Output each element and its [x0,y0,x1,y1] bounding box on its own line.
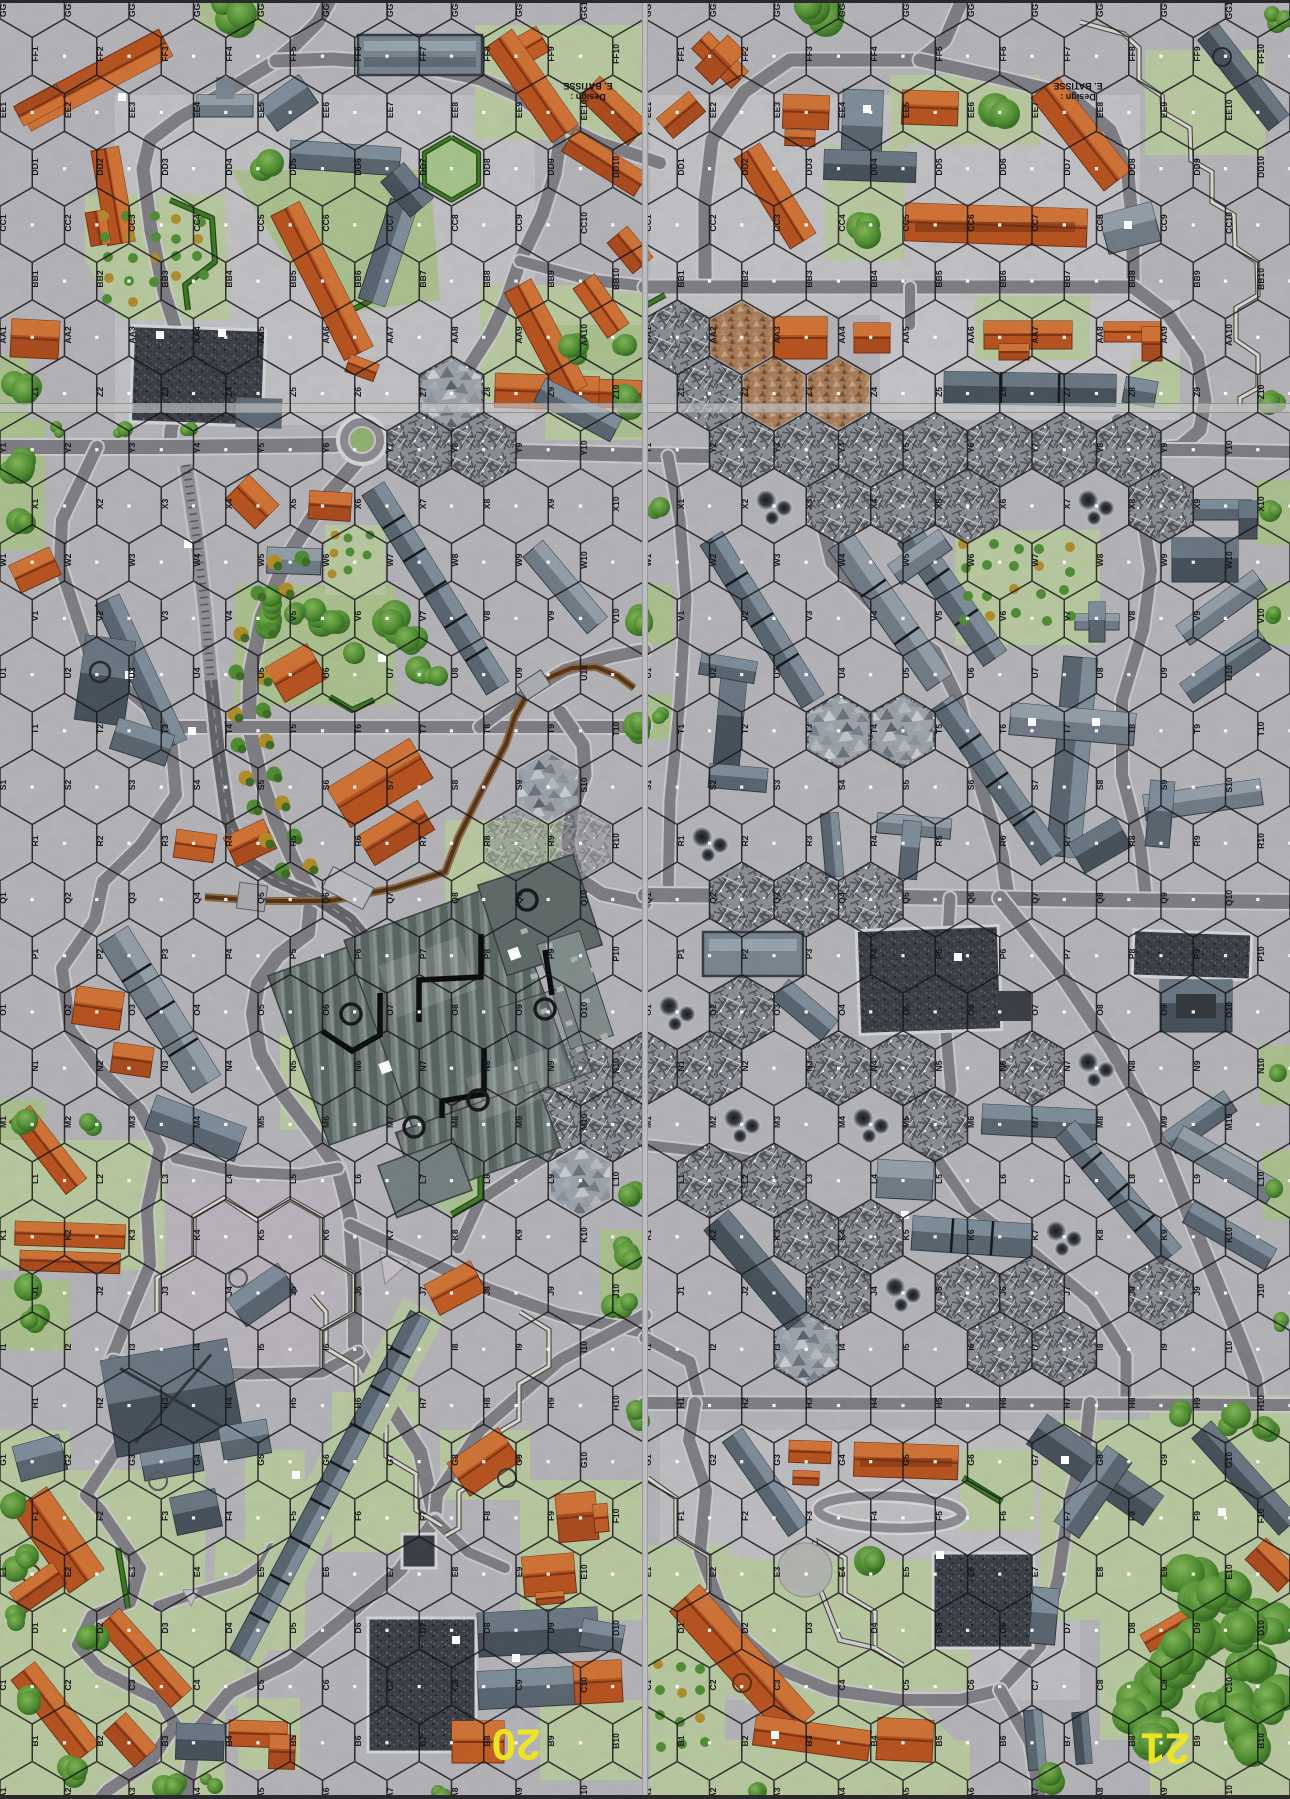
svg-text:O7: O7 [385,1004,395,1016]
svg-text:S1: S1 [0,780,8,791]
svg-text:R3: R3 [804,835,814,846]
svg-text:CC5: CC5 [256,214,266,231]
svg-text:Y6: Y6 [966,443,976,454]
svg-text:AA8: AA8 [450,326,460,343]
svg-text:20: 20 [492,1719,541,1768]
svg-text:N5: N5 [934,1060,944,1071]
svg-text:Q3: Q3 [772,892,782,904]
svg-text:K1: K1 [0,1229,8,1240]
svg-text:P4: P4 [224,949,234,960]
svg-text:M7: M7 [1030,1116,1040,1128]
svg-text:L5: L5 [934,1174,944,1184]
svg-text:B3: B3 [804,1735,814,1746]
svg-text:BB1: BB1 [30,270,40,287]
svg-text:FF2: FF2 [95,46,105,61]
svg-text:O5: O5 [256,1004,266,1016]
svg-text:J7: J7 [1062,1286,1072,1296]
svg-text:BB6: BB6 [353,270,363,287]
svg-text:Z2: Z2 [95,387,105,397]
svg-text:S7: S7 [1030,780,1040,791]
svg-text:T10: T10 [611,721,621,736]
svg-text:V7: V7 [1062,611,1072,622]
svg-text:BB8: BB8 [482,270,492,287]
svg-text:DD10: DD10 [1256,156,1266,178]
svg-text:R8: R8 [482,835,492,846]
svg-text:K5: K5 [256,1229,266,1240]
svg-text:K6: K6 [966,1229,976,1240]
svg-text:G1: G1 [0,1454,8,1466]
svg-text:C8: C8 [1095,1679,1105,1690]
svg-text:V2: V2 [95,611,105,622]
svg-text:B2: B2 [95,1735,105,1746]
svg-text:V2: V2 [740,611,750,622]
svg-text:E5: E5 [901,1567,911,1578]
svg-text:DD8: DD8 [1127,158,1137,175]
svg-text:H8: H8 [482,1397,492,1408]
svg-text:FF10: FF10 [611,44,621,64]
svg-text:G5: G5 [901,1454,911,1466]
svg-text:U7: U7 [1030,667,1040,678]
svg-text:E7: E7 [1030,1567,1040,1578]
svg-text:Z6: Z6 [998,387,1008,397]
svg-text:L9: L9 [1192,1174,1202,1184]
svg-text:C4: C4 [192,1679,202,1690]
svg-text:L2: L2 [95,1174,105,1184]
svg-text:E6: E6 [321,1567,331,1578]
svg-text:Y7: Y7 [1030,443,1040,454]
svg-text:AA7: AA7 [385,326,395,343]
svg-text:D10: D10 [1256,1620,1266,1636]
svg-text:K7: K7 [385,1229,395,1240]
svg-text:S7: S7 [385,780,395,791]
svg-text:N6: N6 [998,1060,1008,1071]
svg-text:T4: T4 [869,724,879,734]
svg-text:M1: M1 [0,1116,8,1128]
svg-text:G5: G5 [256,1454,266,1466]
svg-text:FF8: FF8 [482,46,492,61]
svg-text:U2: U2 [63,667,73,678]
svg-text:G7: G7 [1030,1454,1040,1466]
svg-text:AA8: AA8 [1095,326,1105,343]
svg-text:K10: K10 [1224,1227,1234,1243]
svg-text:BB4: BB4 [869,270,879,287]
svg-text:J3: J3 [160,1286,170,1296]
svg-text:EE10: EE10 [1224,99,1234,120]
svg-text:G8: G8 [1095,1454,1105,1466]
svg-text:EE1: EE1 [0,102,8,118]
svg-text:FF3: FF3 [160,46,170,61]
svg-text:Y10: Y10 [1224,440,1234,456]
svg-text:O9: O9 [1159,1004,1169,1016]
svg-text:O8: O8 [450,1004,460,1016]
svg-text:E9: E9 [1159,1567,1169,1578]
svg-text:K2: K2 [708,1229,718,1240]
svg-text:P5: P5 [288,949,298,960]
svg-text:Z2: Z2 [740,387,750,397]
svg-text:BB5: BB5 [288,270,298,287]
svg-text:I2: I2 [63,1343,73,1350]
svg-text:BB8: BB8 [1127,270,1137,287]
svg-text:CC3: CC3 [772,214,782,231]
svg-text:G10: G10 [1224,1452,1234,1468]
svg-text:AA1: AA1 [0,326,8,343]
svg-text:R6: R6 [998,835,1008,846]
svg-text:G6: G6 [321,1454,331,1466]
svg-text:L4: L4 [869,1174,879,1184]
svg-text:G10: G10 [579,1452,589,1468]
svg-text:DD6: DD6 [353,158,363,175]
svg-text:D10: D10 [611,1620,621,1636]
svg-text:Y8: Y8 [1095,443,1105,454]
svg-text:T9: T9 [546,724,556,734]
svg-text:G4: G4 [192,1454,202,1466]
svg-text:K4: K4 [837,1229,847,1240]
svg-text:T5: T5 [288,724,298,734]
svg-text:Q6: Q6 [321,892,331,904]
svg-text:X10: X10 [611,496,621,512]
svg-text:J2: J2 [740,1286,750,1296]
svg-text:N2: N2 [740,1060,750,1071]
svg-text:DD8: DD8 [482,158,492,175]
svg-text:BB2: BB2 [740,270,750,287]
svg-text:O5: O5 [901,1004,911,1016]
svg-text:S6: S6 [966,780,976,791]
svg-text:J9: J9 [546,1286,556,1296]
svg-text:V8: V8 [1127,611,1137,622]
svg-text:CC8: CC8 [450,214,460,231]
svg-text:P9: P9 [1192,949,1202,960]
svg-text:O4: O4 [192,1004,202,1016]
svg-text:BB3: BB3 [804,270,814,287]
svg-text:H2: H2 [95,1397,105,1408]
svg-text:Y5: Y5 [256,443,266,454]
svg-text:C10: C10 [579,1677,589,1693]
svg-text:BB3: BB3 [160,270,170,287]
svg-text:D5: D5 [934,1622,944,1633]
svg-text:P8: P8 [1127,949,1137,960]
svg-text:EE2: EE2 [63,102,73,118]
svg-text:AA3: AA3 [127,326,137,343]
svg-text:D3: D3 [804,1622,814,1633]
svg-text:K9: K9 [514,1229,524,1240]
svg-text:BB7: BB7 [418,270,428,287]
svg-text:K3: K3 [772,1229,782,1240]
svg-text:M6: M6 [966,1116,976,1128]
svg-text:L3: L3 [160,1174,170,1184]
svg-text:T8: T8 [1127,724,1137,734]
svg-text:V8: V8 [482,611,492,622]
svg-text:O7: O7 [1030,1004,1040,1016]
svg-text:Z4: Z4 [869,387,879,397]
svg-text:P1: P1 [676,949,686,960]
svg-text:CC6: CC6 [321,214,331,231]
svg-text:C4: C4 [837,1679,847,1690]
svg-text:FF1: FF1 [676,46,686,61]
svg-text:F5: F5 [934,1511,944,1521]
svg-text:Y8: Y8 [450,443,460,454]
svg-text:P6: P6 [353,949,363,960]
svg-text:R10: R10 [611,833,621,849]
svg-text:J10: J10 [1256,1284,1266,1299]
svg-text:R1: R1 [676,835,686,846]
svg-text:CC7: CC7 [1030,214,1040,231]
svg-text:X3: X3 [804,499,814,510]
svg-text:F10: F10 [1256,1508,1266,1523]
svg-text:H3: H3 [160,1397,170,1408]
svg-text:C9: C9 [514,1679,524,1690]
svg-text:Q7: Q7 [385,892,395,904]
svg-text:AA4: AA4 [837,326,847,343]
svg-text:Q7: Q7 [1030,892,1040,904]
svg-text:B1: B1 [676,1735,686,1746]
svg-text:B6: B6 [998,1735,1008,1746]
svg-text:C6: C6 [321,1679,331,1690]
svg-text:G3: G3 [772,1454,782,1466]
svg-text:P7: P7 [418,949,428,960]
svg-text:L2: L2 [740,1174,750,1184]
svg-text:EE7: EE7 [1030,102,1040,118]
svg-text:N2: N2 [95,1060,105,1071]
svg-text:AA7: AA7 [1030,326,1040,343]
svg-text:P1: P1 [30,949,40,960]
svg-text:K4: K4 [192,1229,202,1240]
svg-text:DD2: DD2 [740,158,750,175]
svg-text:X5: X5 [934,499,944,510]
svg-text:E4: E4 [192,1567,202,1578]
svg-text:F5: F5 [288,1511,298,1521]
svg-text:T8: T8 [482,724,492,734]
svg-text:FF5: FF5 [934,46,944,61]
svg-text:H1: H1 [676,1397,686,1408]
svg-text:T3: T3 [160,724,170,734]
svg-text:M4: M4 [837,1116,847,1128]
svg-text:H4: H4 [869,1397,879,1408]
svg-text:H5: H5 [288,1397,298,1408]
svg-text:M5: M5 [256,1116,266,1128]
svg-text:N6: N6 [353,1060,363,1071]
svg-text:M2: M2 [708,1116,718,1128]
svg-text:U1: U1 [0,667,8,678]
svg-text:G2: G2 [708,1454,718,1466]
svg-text:Z3: Z3 [160,387,170,397]
svg-text:U6: U6 [966,667,976,678]
svg-text:Y5: Y5 [901,443,911,454]
svg-text:Z4: Z4 [224,387,234,397]
svg-text:DD9: DD9 [546,158,556,175]
svg-text:K3: K3 [127,1229,137,1240]
svg-text:DD5: DD5 [288,158,298,175]
svg-text:U3: U3 [772,667,782,678]
svg-text:Y6: Y6 [321,443,331,454]
svg-text:V3: V3 [160,611,170,622]
svg-text:H9: H9 [546,1397,556,1408]
svg-text:W4: W4 [192,553,202,566]
svg-text:F8: F8 [482,1511,492,1521]
svg-text:CC3: CC3 [127,214,137,231]
svg-text:B4: B4 [869,1735,879,1746]
svg-text:CC4: CC4 [192,214,202,231]
svg-text:Y4: Y4 [192,443,202,454]
svg-text:E10: E10 [1224,1564,1234,1580]
svg-text:D7: D7 [1062,1622,1072,1633]
svg-text:CC7: CC7 [385,214,395,231]
svg-text:N9: N9 [1192,1060,1202,1071]
svg-text:E5: E5 [256,1567,266,1578]
svg-text:H10: H10 [611,1395,621,1411]
svg-text:CC9: CC9 [1159,214,1169,231]
svg-text:W9: W9 [1159,553,1169,566]
svg-text:Z10: Z10 [611,384,621,399]
svg-text:B5: B5 [288,1735,298,1746]
svg-text:J6: J6 [998,1286,1008,1296]
svg-text:X9: X9 [546,499,556,510]
svg-text:M9: M9 [1159,1116,1169,1128]
svg-text:FF9: FF9 [546,46,556,61]
svg-text:F2: F2 [95,1511,105,1521]
svg-text:D9: D9 [1192,1622,1202,1633]
svg-text:H3: H3 [804,1397,814,1408]
svg-text:V4: V4 [869,611,879,622]
svg-text:F4: F4 [224,1511,234,1521]
svg-text:W6: W6 [966,553,976,566]
svg-text:FF4: FF4 [224,46,234,61]
svg-text:K6: K6 [321,1229,331,1240]
svg-text:F4: F4 [869,1511,879,1521]
svg-text:H1: H1 [30,1397,40,1408]
svg-text:F6: F6 [998,1511,1008,1521]
svg-text:BB9: BB9 [1192,270,1202,287]
svg-text:I6: I6 [966,1343,976,1350]
svg-text:J8: J8 [482,1286,492,1296]
svg-text:X7: X7 [1062,499,1072,510]
svg-text:B8: B8 [482,1735,492,1746]
svg-text:W5: W5 [901,553,911,566]
svg-text:D4: D4 [869,1622,879,1633]
svg-text:EE8: EE8 [1095,102,1105,118]
svg-text:T7: T7 [1062,724,1072,734]
svg-text:Y2: Y2 [63,443,73,454]
svg-text:EE6: EE6 [321,102,331,118]
svg-text:S5: S5 [901,780,911,791]
svg-text:W3: W3 [127,553,137,566]
svg-text:F7: F7 [418,1511,428,1521]
svg-text:I9: I9 [1159,1343,1169,1350]
svg-text:X2: X2 [95,499,105,510]
svg-text:O2: O2 [63,1004,73,1016]
svg-text:V5: V5 [288,611,298,622]
svg-text:Q8: Q8 [1095,892,1105,904]
svg-text:P7: P7 [1062,949,1072,960]
svg-text:L3: L3 [804,1174,814,1184]
svg-text:E6: E6 [966,1567,976,1578]
svg-text:C10: C10 [1224,1677,1234,1693]
svg-text:DD7: DD7 [418,158,428,175]
svg-text:BB9: BB9 [546,270,556,287]
svg-text:EE7: EE7 [385,102,395,118]
svg-text:E1: E1 [0,1567,8,1578]
svg-text:FF9: FF9 [1192,46,1202,61]
svg-text:J10: J10 [611,1284,621,1299]
svg-text:FF5: FF5 [288,46,298,61]
svg-text:J1: J1 [30,1286,40,1296]
svg-text:DD2: DD2 [95,158,105,175]
svg-text:W9: W9 [514,553,524,566]
svg-text:AA5: AA5 [901,326,911,343]
svg-text:E8: E8 [1095,1567,1105,1578]
svg-text:L10: L10 [1256,1171,1266,1186]
svg-text:DD5: DD5 [934,158,944,175]
svg-text:BB1: BB1 [676,270,686,287]
svg-text:P2: P2 [95,949,105,960]
svg-text:V10: V10 [1256,608,1266,624]
svg-text:AA9: AA9 [1159,326,1169,343]
svg-text:Z1: Z1 [676,387,686,397]
svg-text:B2: B2 [740,1735,750,1746]
svg-text:J3: J3 [804,1286,814,1296]
svg-text:EE9: EE9 [1159,102,1169,118]
svg-text:J9: J9 [1192,1286,1202,1296]
svg-text:EE6: EE6 [966,102,976,118]
svg-text:B6: B6 [353,1735,363,1746]
svg-text:F10: F10 [611,1508,621,1523]
svg-text:D8: D8 [482,1622,492,1633]
svg-text:B5: B5 [934,1735,944,1746]
svg-text:U10: U10 [579,665,589,681]
svg-text:M10: M10 [1224,1113,1234,1130]
svg-text:E3: E3 [772,1567,782,1578]
svg-text:R4: R4 [869,835,879,846]
svg-text:G4: G4 [837,1454,847,1466]
svg-text:M8: M8 [450,1116,460,1128]
svg-text:BB4: BB4 [224,270,234,287]
svg-text:J5: J5 [288,1286,298,1296]
svg-text:N5: N5 [288,1060,298,1071]
svg-text:T6: T6 [998,724,1008,734]
svg-text:Q9: Q9 [1159,892,1169,904]
svg-text:L1: L1 [676,1174,686,1184]
svg-text:U9: U9 [514,667,524,678]
svg-text:G6: G6 [966,1454,976,1466]
svg-text:I7: I7 [1030,1343,1040,1350]
svg-text:AA2: AA2 [63,326,73,343]
svg-text:Y3: Y3 [127,443,137,454]
svg-text:F1: F1 [30,1511,40,1521]
svg-text:J8: J8 [1127,1286,1137,1296]
svg-text:I8: I8 [1095,1343,1105,1350]
svg-text:E4: E4 [837,1567,847,1578]
svg-text:X1: X1 [30,499,40,510]
svg-text:O4: O4 [837,1004,847,1016]
svg-text:E9: E9 [514,1567,524,1578]
svg-text:D4: D4 [224,1622,234,1633]
svg-text:BB7: BB7 [1062,270,1072,287]
svg-text:DD4: DD4 [224,158,234,175]
svg-text:P2: P2 [740,949,750,960]
svg-text:FF7: FF7 [1062,46,1072,61]
svg-text:M2: M2 [63,1116,73,1128]
svg-text:DD3: DD3 [160,158,170,175]
svg-text:Q2: Q2 [708,892,718,904]
svg-text:X4: X4 [224,499,234,510]
svg-text:Z9: Z9 [1192,387,1202,397]
svg-text:P6: P6 [998,949,1008,960]
svg-text:X4: X4 [869,499,879,510]
svg-text:Y2: Y2 [708,443,718,454]
svg-text:C7: C7 [1030,1679,1040,1690]
svg-text:R7: R7 [1062,835,1072,846]
svg-text:EE3: EE3 [127,102,137,118]
svg-text:O10: O10 [1224,1002,1234,1018]
